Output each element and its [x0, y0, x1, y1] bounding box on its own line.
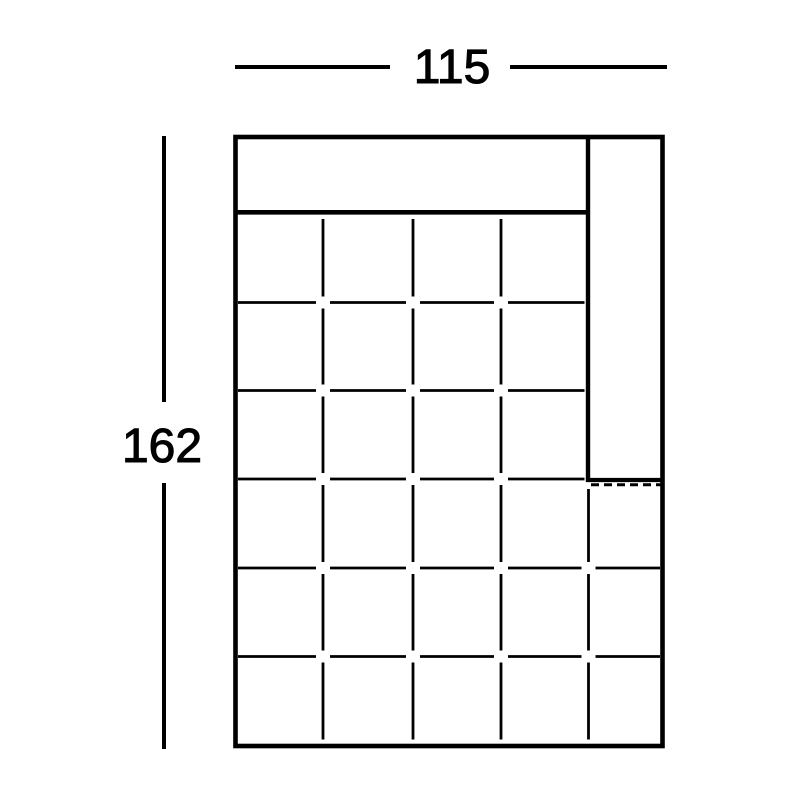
svg-text:162: 162	[122, 420, 202, 473]
svg-text:115: 115	[414, 41, 491, 94]
